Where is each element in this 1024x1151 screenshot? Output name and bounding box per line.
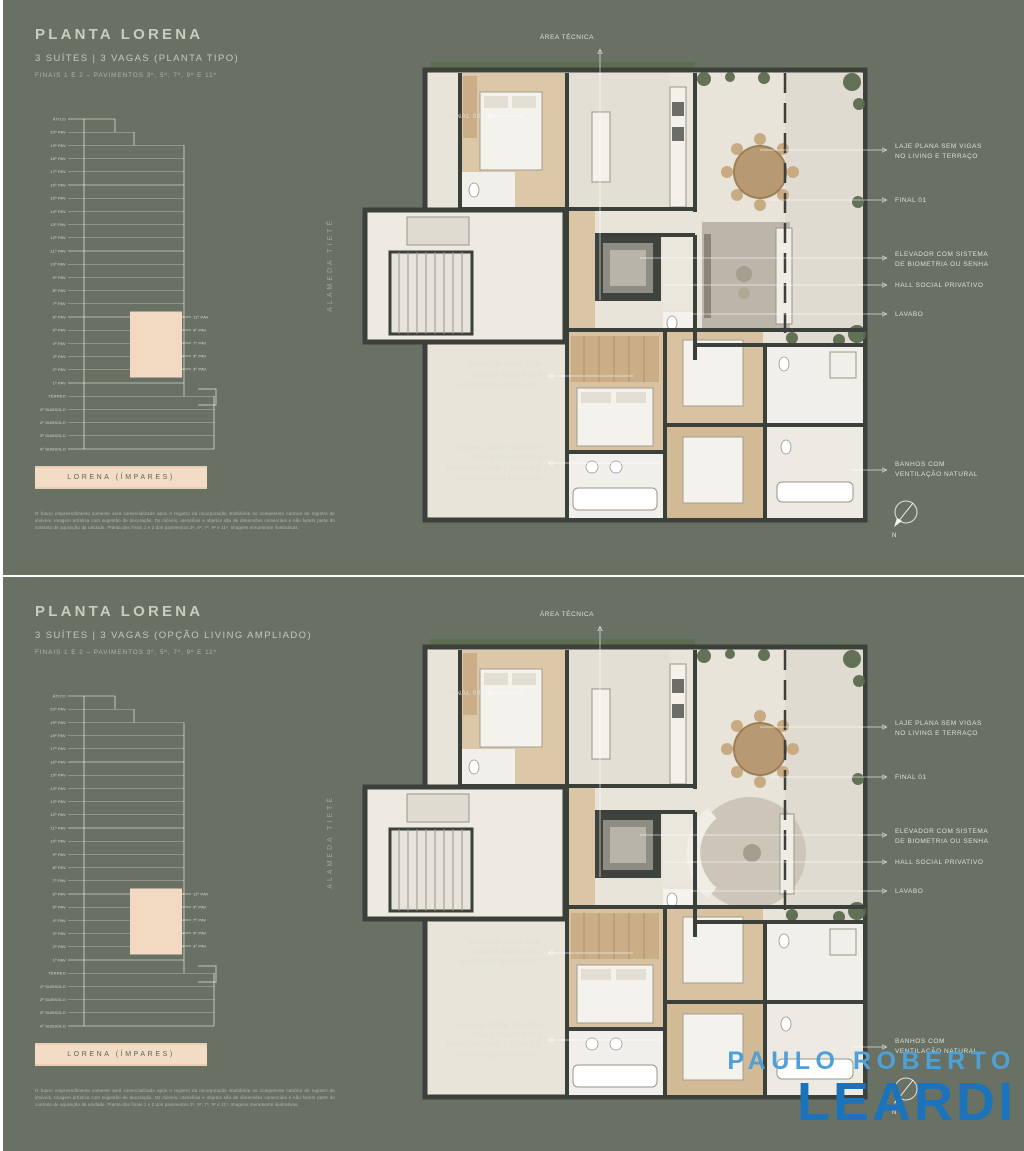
floor-label: 18º PAV	[50, 733, 66, 738]
floor-label: 18º PAV	[50, 156, 66, 161]
label-area-tecnica: ÁREA TÉCNICA	[518, 610, 594, 620]
floor-label: 1º SUBSOLO	[40, 984, 66, 989]
floor-label: 5º PAV	[53, 905, 67, 910]
label-final-02: FINAL 02	[413, 689, 481, 699]
floor-label: 10º PAV	[50, 262, 66, 267]
floor-label: 11º PAV	[50, 825, 66, 830]
floor-label: 14º PAV	[50, 786, 66, 791]
floor-label: 1º SUBSOLO	[40, 407, 66, 412]
highlight-floor-label: 11º PAV	[193, 314, 209, 319]
floor-label: 17º PAV	[50, 169, 66, 174]
legal-disclaimer: O futuro empreendimento somente será com…	[35, 511, 335, 532]
floor-label: TÉRREO	[48, 394, 66, 399]
label-final-01: FINAL 01	[895, 196, 927, 206]
panel-1: PLANTA LORENA 3 SUÍTES | 3 VAGAS (PLANTA…	[0, 0, 1024, 575]
floor-label: 1º PAV	[53, 957, 67, 962]
floor-label: 2º PAV	[53, 367, 67, 372]
floor-label: 4º PAV	[53, 918, 67, 923]
floors-note: FINAIS 1 E 2 – PAVIMENTOS 3º, 5º, 7º, 9º…	[35, 72, 239, 79]
floor-label: 19º PAV	[50, 720, 66, 725]
highlighted-floors	[130, 889, 182, 955]
label-area-tecnica: ÁREA TÉCNICA	[518, 33, 594, 43]
label-suite-master: SUÍTE MASTER COM AMPLA ÁREA PARA ARMÁRIO…	[440, 938, 542, 968]
floor-label: 6º PAV	[53, 314, 67, 319]
building-elevation-diagram: ÁTICO20º PAV19º PAV18º PAV17º PAV16º PAV…	[30, 682, 245, 1047]
plan-subtitle: 3 SUÍTES | 3 VAGAS (OPÇÃO LIVING AMPLIAD…	[35, 630, 312, 641]
floor-label: 6º PAV	[53, 891, 67, 896]
label-lavabo: LAVABO	[895, 310, 923, 320]
highlight-floor-label: 9º PAV	[193, 904, 207, 909]
floor-label: 15º PAV	[50, 773, 66, 778]
floor-label: TÉRREO	[48, 971, 66, 976]
legal-disclaimer: O futuro empreendimento somente será com…	[35, 1088, 335, 1109]
floor-label: 14º PAV	[50, 209, 66, 214]
floor-label: 13º PAV	[50, 799, 66, 804]
brand-logo: PAULO ROBERTO LEARDI	[727, 1049, 1016, 1129]
floor-label: 4º PAV	[53, 341, 67, 346]
label-banho-suite-master: BANHO SUÍTE MASTER COM ESPAÇO PARA BANCA…	[425, 444, 542, 484]
floor-label: 5º PAV	[53, 328, 67, 333]
label-hall-social: HALL SOCIAL PRIVATIVO	[895, 281, 984, 291]
label-elevador: ELEVADOR COM SISTEMA DE BIOMETRIA OU SEN…	[895, 827, 989, 847]
highlight-floor-label: 11º PAV	[193, 891, 209, 896]
floor-label: 2º PAV	[53, 944, 67, 949]
compass-icon: N	[884, 494, 930, 542]
brochure-page: PLANTA LORENA 3 SUÍTES | 3 VAGAS (PLANTA…	[0, 0, 1024, 1151]
floor-label: 4º SUBSOLO	[40, 1023, 66, 1028]
living-rug-ampliado	[693, 797, 806, 909]
logo-line-paulo-roberto: PAULO ROBERTO	[727, 1049, 1016, 1074]
floor-label: 8º PAV	[53, 865, 67, 870]
logo-line-leardi: LEARDI	[727, 1075, 1016, 1129]
highlight-floor-label: 5º PAV	[193, 930, 207, 935]
floors-note: FINAIS 1 E 2 – PAVIMENTOS 3º, 5º, 7º, 9º…	[35, 649, 312, 656]
tower-banner: LORENA (ÍMPARES)	[35, 1043, 207, 1066]
floor-label: 2º SUBSOLO	[40, 420, 66, 425]
floor-label: 13º PAV	[50, 222, 66, 227]
floor-label: 3º PAV	[53, 354, 67, 359]
floor-label: 7º PAV	[53, 878, 67, 883]
floor-label: 3º PAV	[53, 931, 67, 936]
floor-label: 8º PAV	[53, 288, 67, 293]
svg-text:N: N	[892, 533, 897, 539]
title-block: PLANTA LORENA 3 SUÍTES | 3 VAGAS (OPÇÃO …	[35, 603, 312, 656]
living-rug-tipo	[702, 222, 792, 330]
highlighted-floors	[130, 312, 182, 378]
floor-label: 9º PAV	[53, 275, 67, 280]
label-hall-social: HALL SOCIAL PRIVATIVO	[895, 858, 984, 868]
floor-label: 11º PAV	[50, 248, 66, 253]
floor-label: 20º PAV	[50, 707, 66, 712]
highlight-floor-label: 3º PAV	[193, 943, 207, 948]
tower-banner: LORENA (ÍMPARES)	[35, 466, 207, 489]
street-label: ALAMEDA TIETÊ	[327, 218, 334, 312]
label-laje-plana: LAJE PLANA SEM VIGAS NO LIVING E TERRAÇO	[895, 719, 982, 739]
floor-label: 12º PAV	[50, 812, 66, 817]
floor-label: 19º PAV	[50, 143, 66, 148]
highlight-floor-label: 3º PAV	[193, 366, 207, 371]
label-final-02: FINAL 02	[413, 112, 481, 122]
floor-label: 17º PAV	[50, 746, 66, 751]
label-suite-master: SUÍTE MASTER COM AMPLA ÁREA PARA ARMÁRIO…	[440, 361, 542, 391]
plan-subtitle: 3 SUÍTES | 3 VAGAS (PLANTA TIPO)	[35, 53, 239, 64]
highlight-floor-label: 9º PAV	[193, 327, 207, 332]
label-banhos: BANHOS COM VENTILAÇÃO NATURAL	[895, 460, 978, 480]
floor-label: 16º PAV	[50, 759, 66, 764]
label-final-01: FINAL 01	[895, 773, 927, 783]
floor-label: ÁTICO	[53, 116, 66, 121]
floor-label: 3º SUBSOLO	[40, 433, 66, 438]
title-block: PLANTA LORENA 3 SUÍTES | 3 VAGAS (PLANTA…	[35, 26, 239, 79]
label-laje-plana: LAJE PLANA SEM VIGAS NO LIVING E TERRAÇO	[895, 142, 982, 162]
floor-label: 3º SUBSOLO	[40, 1010, 66, 1015]
floor-label: 1º PAV	[53, 380, 67, 385]
floor-label: 9º PAV	[53, 852, 67, 857]
street-label: ALAMEDA TIETÊ	[327, 795, 334, 889]
floor-label: 16º PAV	[50, 182, 66, 187]
label-elevador: ELEVADOR COM SISTEMA DE BIOMETRIA OU SEN…	[895, 250, 989, 270]
floor-label: 7º PAV	[53, 301, 67, 306]
highlight-floor-label: 5º PAV	[193, 353, 207, 358]
floor-label: 2º SUBSOLO	[40, 997, 66, 1002]
page-title: PLANTA LORENA	[35, 603, 312, 620]
label-lavabo: LAVABO	[895, 887, 923, 897]
floor-label: 15º PAV	[50, 196, 66, 201]
floor-label: 20º PAV	[50, 130, 66, 135]
floor-label: ÁTICO	[53, 693, 66, 698]
building-elevation-diagram: ÁTICO20º PAV19º PAV18º PAV17º PAV16º PAV…	[30, 105, 245, 470]
floor-label: 12º PAV	[50, 235, 66, 240]
page-title: PLANTA LORENA	[35, 26, 239, 43]
floor-label: 4º SUBSOLO	[40, 446, 66, 451]
floor-label: 10º PAV	[50, 839, 66, 844]
highlight-floor-label: 7º PAV	[193, 917, 207, 922]
highlight-floor-label: 7º PAV	[193, 340, 207, 345]
label-banho-suite-master: BANHO SUÍTE MASTER COM ESPAÇO PARA BANCA…	[425, 1021, 542, 1061]
